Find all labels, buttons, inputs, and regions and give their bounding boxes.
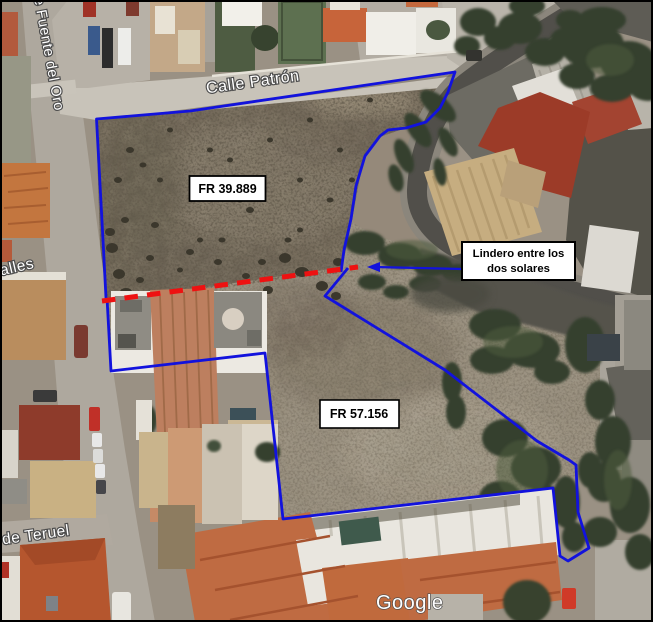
svg-text:Lindero entre los: Lindero entre los xyxy=(473,248,565,260)
svg-text:Google: Google xyxy=(376,592,444,614)
svg-text:FR 39.889: FR 39.889 xyxy=(198,182,256,196)
svg-text:FR 57.156: FR 57.156 xyxy=(330,407,388,421)
svg-text:dos solares: dos solares xyxy=(487,263,550,275)
